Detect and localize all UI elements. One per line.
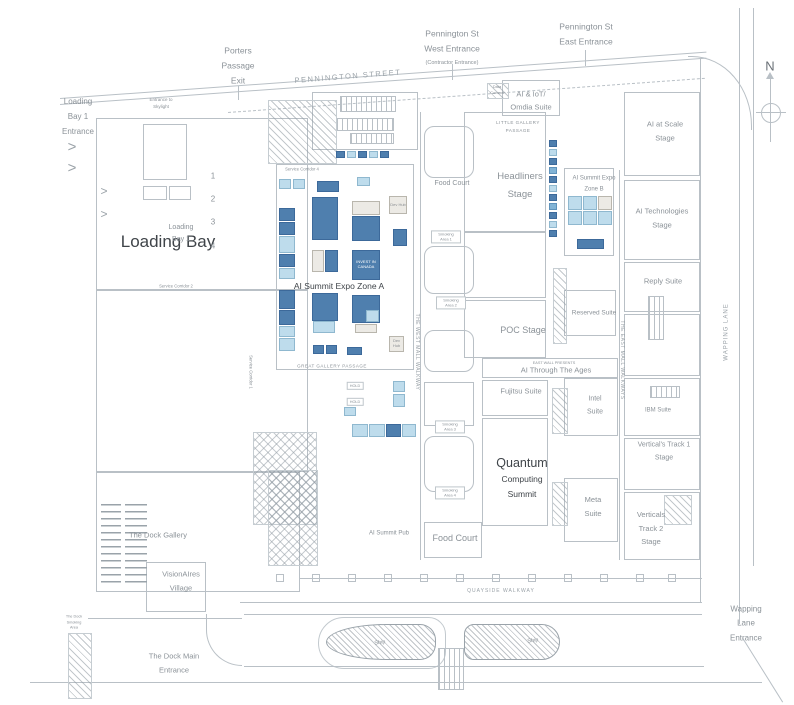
hatched-area xyxy=(553,268,567,344)
booth xyxy=(549,158,557,165)
booth xyxy=(279,290,295,309)
booth xyxy=(568,196,582,210)
room-outline xyxy=(143,186,167,200)
booth xyxy=(369,151,378,158)
booth xyxy=(549,203,557,210)
pennington-west-entrance-label: Pennington St West Entrance xyxy=(421,27,483,58)
ship-2 xyxy=(464,624,560,660)
booth xyxy=(317,181,339,192)
booth xyxy=(549,230,557,237)
booth xyxy=(326,345,337,354)
wall-line xyxy=(244,614,702,615)
hatched-area xyxy=(268,470,318,566)
booth xyxy=(598,196,612,210)
room-outline xyxy=(648,296,664,340)
booth xyxy=(549,212,557,219)
booth xyxy=(583,196,597,210)
wapping-lane-label: WAPPING LANE xyxy=(724,303,731,360)
booth xyxy=(313,321,335,333)
booth xyxy=(549,185,557,192)
hatched-area xyxy=(487,83,509,99)
ship-1 xyxy=(326,624,436,660)
room-outline xyxy=(424,382,474,426)
room-outline xyxy=(502,80,560,116)
booth xyxy=(347,347,362,355)
room-outline xyxy=(336,118,394,131)
dev-hub-booth: Dev Hub xyxy=(389,196,407,214)
hatched-area xyxy=(664,495,692,525)
wall-line xyxy=(452,64,453,80)
booth xyxy=(293,179,305,189)
room-outline xyxy=(464,232,546,298)
compass-circle xyxy=(761,103,781,123)
room-outline xyxy=(624,180,700,260)
wall-line xyxy=(742,637,783,702)
booth xyxy=(325,250,338,272)
booth xyxy=(393,394,405,407)
wall-line xyxy=(244,666,704,667)
booth xyxy=(568,211,582,225)
booth xyxy=(279,208,295,221)
booth xyxy=(279,254,295,267)
room-outline xyxy=(564,478,618,542)
invest-in-canada-booth: INVEST IN CANADA xyxy=(352,250,380,280)
booth xyxy=(380,151,389,158)
room-outline xyxy=(464,112,546,232)
wall-line xyxy=(300,578,702,579)
wall-line xyxy=(585,50,586,66)
wall-line xyxy=(700,58,701,602)
booth xyxy=(352,424,368,437)
hatched-area xyxy=(268,100,337,164)
chevron-right-icon: > xyxy=(68,138,77,155)
room-outline xyxy=(143,124,187,180)
booth xyxy=(549,176,557,183)
smoking-area-1: Smoking Area 1 xyxy=(431,230,461,243)
room-outline xyxy=(438,648,464,690)
booth xyxy=(347,151,356,158)
booth xyxy=(279,179,291,189)
booth xyxy=(279,268,295,279)
room-outline xyxy=(146,562,206,612)
wall-line xyxy=(238,86,239,100)
booth xyxy=(393,229,407,246)
room-outline xyxy=(424,126,474,178)
venue-floor-plan: N INVEST IN CANADADev HubDev HubPorters … xyxy=(0,0,794,705)
hold-box-1: HOLD xyxy=(347,382,364,390)
booth xyxy=(549,140,557,147)
booth xyxy=(583,211,597,225)
wall-line xyxy=(240,602,702,603)
hatched-area xyxy=(552,388,568,434)
booth xyxy=(386,424,401,437)
booth xyxy=(344,407,356,416)
room-outline xyxy=(624,92,700,176)
wall-line xyxy=(739,8,740,624)
room-outline xyxy=(482,380,548,416)
the-dock-main-entrance-label: The Dock Main Entrance xyxy=(142,650,206,677)
booth xyxy=(312,293,338,321)
dev-hub-booth: Dev Hub xyxy=(389,336,404,352)
booth xyxy=(577,239,604,249)
booth xyxy=(366,310,379,322)
wall-line xyxy=(88,618,242,619)
booth xyxy=(279,338,295,351)
chevron-right-icon: > xyxy=(68,159,77,176)
booth xyxy=(279,236,295,253)
compass-north-label: N xyxy=(765,59,774,74)
gallery-seating-rows xyxy=(125,504,147,588)
wall-line xyxy=(619,170,620,560)
booth xyxy=(279,222,295,235)
wall-line xyxy=(753,8,754,566)
hatched-area xyxy=(552,482,568,526)
booth xyxy=(312,197,338,240)
hold-box-2: HOLD xyxy=(347,398,364,406)
booth xyxy=(279,310,295,325)
room-outline xyxy=(482,418,548,526)
wapping-lane-entrance-label: Wapping Lane Entrance xyxy=(724,602,768,645)
room-outline xyxy=(169,186,191,200)
booth xyxy=(352,201,380,215)
room-outline xyxy=(276,574,284,582)
booth xyxy=(549,221,557,228)
room-outline xyxy=(564,290,616,336)
booth xyxy=(336,151,345,158)
the-dock-smoking-area-label: The Dock Smoking Area xyxy=(64,614,84,631)
booth xyxy=(549,194,557,201)
room-outline xyxy=(624,438,700,490)
booth xyxy=(402,424,416,437)
booth xyxy=(279,326,295,337)
room-outline xyxy=(482,358,618,378)
ai-summit-pub-label: AI Summit Pub xyxy=(369,531,409,538)
room-outline xyxy=(464,300,546,358)
booth xyxy=(393,381,405,392)
dock-edge-curve xyxy=(206,614,242,666)
room-outline xyxy=(424,522,482,558)
quayside-walkway-label: QUAYSIDE WALKWAY xyxy=(467,589,535,595)
booth xyxy=(313,345,324,354)
booth xyxy=(355,324,377,333)
hatched-area xyxy=(68,633,92,699)
porters-passage-exit-label: Porters Passage Exit xyxy=(218,44,258,89)
pennington-east-entrance-label: Pennington St East Entrance xyxy=(555,20,617,51)
booth xyxy=(358,151,367,158)
room-outline xyxy=(564,378,618,436)
booth xyxy=(549,149,557,156)
room-outline xyxy=(650,386,680,398)
room-outline xyxy=(350,133,394,144)
smoking-area-2: Smoking Area 2 xyxy=(436,296,466,309)
booth xyxy=(357,177,370,186)
room-outline xyxy=(424,246,474,294)
booth xyxy=(369,424,385,437)
room-outline xyxy=(424,330,474,372)
booth xyxy=(352,216,380,241)
booth xyxy=(549,167,557,174)
booth xyxy=(598,211,612,225)
room-outline xyxy=(424,436,474,492)
gallery-seating-rows xyxy=(101,504,121,588)
booth xyxy=(312,250,324,272)
wall-line xyxy=(30,682,762,683)
wall-line xyxy=(420,112,421,560)
